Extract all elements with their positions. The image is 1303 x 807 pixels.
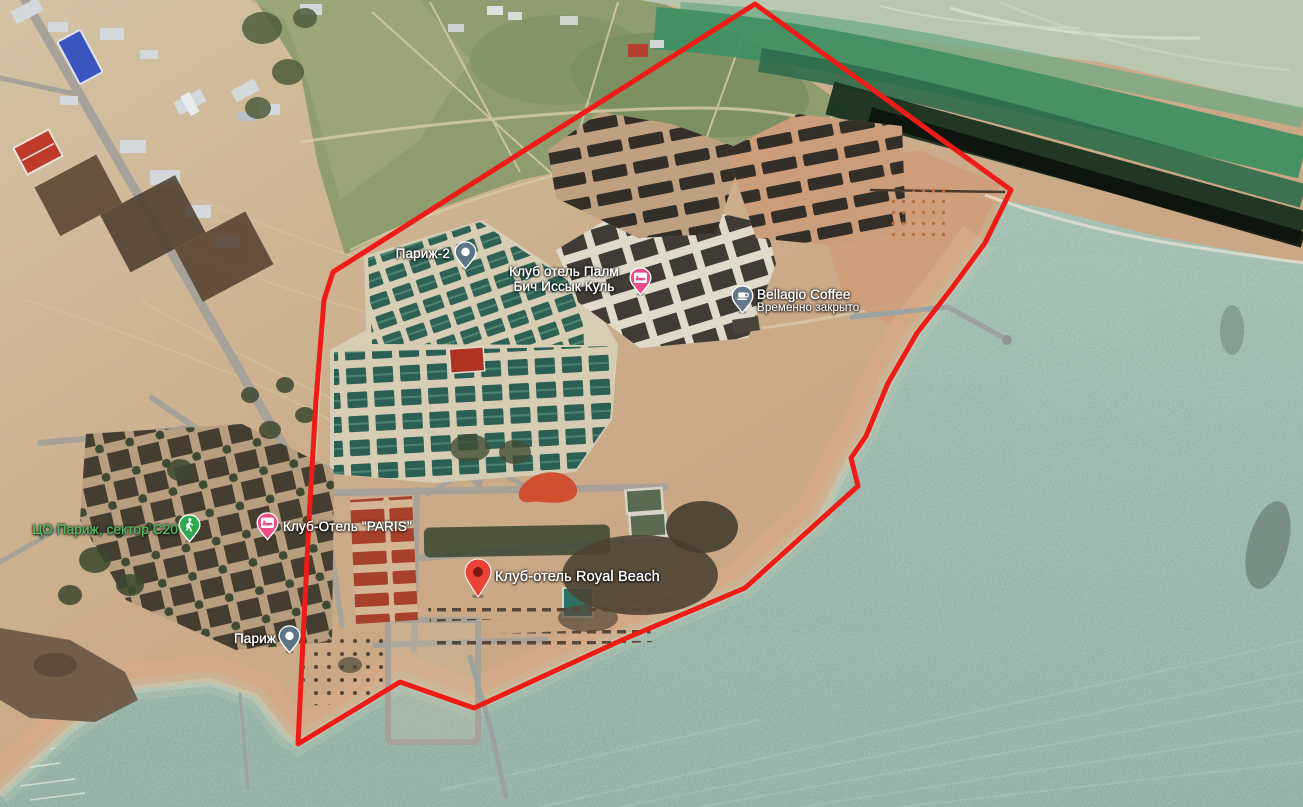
poi-name: Bellagio Coffee bbox=[757, 287, 851, 302]
place-pin-icon[interactable] bbox=[454, 241, 477, 270]
hotel-pin-icon[interactable] bbox=[629, 267, 652, 296]
label-bellagio-coffee[interactable]: Bellagio Coffee Временно закрыто bbox=[757, 287, 859, 315]
label-parizh-2[interactable]: Париж-2 bbox=[384, 246, 450, 261]
label-royal-beach[interactable]: Клуб-отель Royal Beach bbox=[495, 570, 660, 585]
red-marker-icon[interactable] bbox=[463, 558, 493, 598]
label-co-parizh-sector[interactable]: ЦО Париж, сектор C20 bbox=[16, 522, 178, 537]
poi-status: Временно закрыто bbox=[757, 302, 859, 315]
label-parizh[interactable]: Париж bbox=[224, 631, 276, 646]
place-pin-icon[interactable] bbox=[278, 625, 301, 654]
label-palm-beach-hotel[interactable]: Клуб отель Палм Бич Иссык Куль bbox=[506, 264, 622, 294]
satellite-imagery bbox=[0, 0, 1303, 807]
label-hotel-paris[interactable]: Клуб-Отель "PARIS" bbox=[283, 519, 412, 534]
cafe-pin-icon[interactable] bbox=[731, 285, 754, 314]
map-canvas[interactable]: Париж-2 Клуб отель Палм Бич Иссык Куль B… bbox=[0, 0, 1303, 807]
attraction-pin-icon[interactable] bbox=[178, 514, 201, 543]
hotel-pin-icon[interactable] bbox=[256, 512, 279, 541]
